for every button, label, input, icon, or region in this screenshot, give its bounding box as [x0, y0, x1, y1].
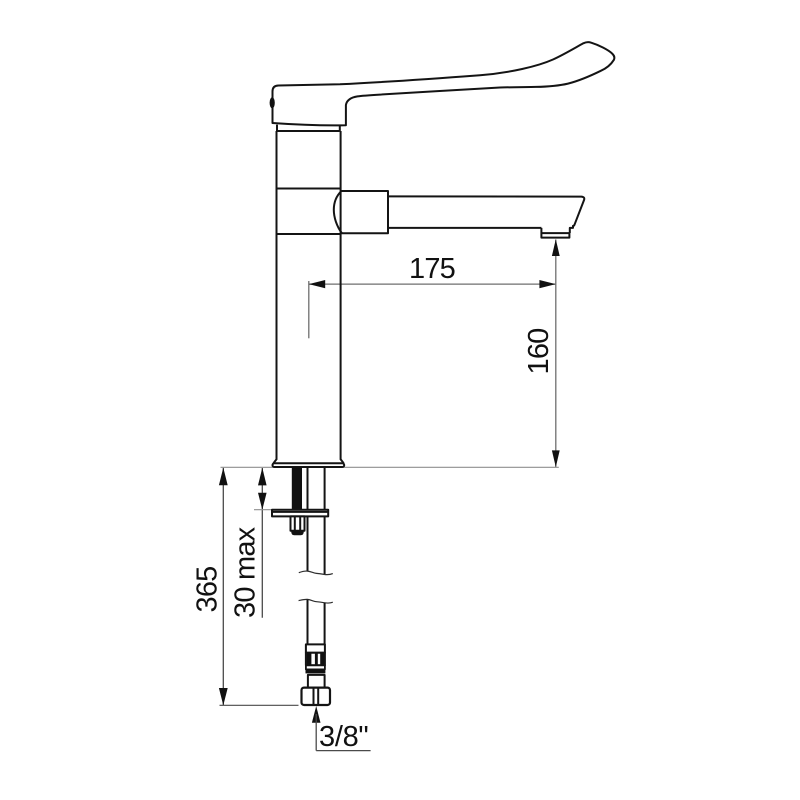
svg-text:175: 175	[409, 253, 455, 285]
svg-text:30 max: 30 max	[229, 526, 261, 618]
svg-text:365: 365	[191, 567, 223, 613]
svg-text:160: 160	[523, 329, 555, 375]
svg-text:3/8": 3/8"	[319, 721, 368, 753]
